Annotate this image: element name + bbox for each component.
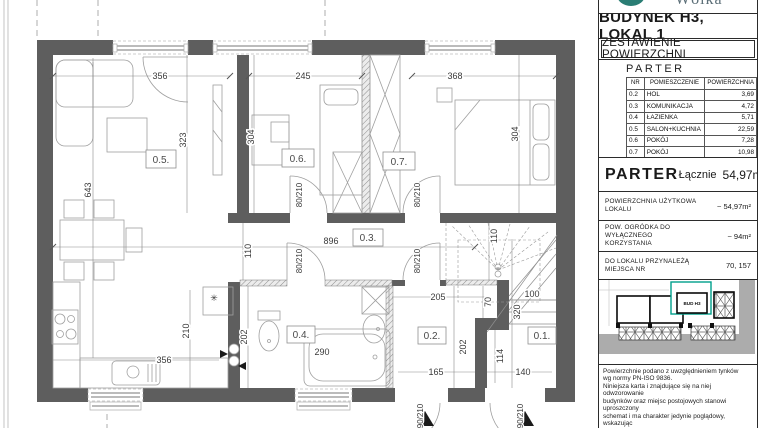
dim-room01-width: 140 (515, 367, 530, 377)
pillow (533, 144, 549, 180)
room-label-04: 0.4. (287, 326, 315, 343)
dining-table (60, 220, 124, 260)
dim-stairs-landing: 70 (483, 297, 493, 307)
site-map: BUD H3 (599, 280, 755, 364)
walls (37, 40, 575, 402)
parking-row: DO LOKALU PRZYNALEŻĄ MIEJSCA NR 70, 157 (599, 252, 757, 280)
room-label-07: 0.7. (383, 152, 415, 170)
svg-text:0.4.: 0.4. (293, 330, 310, 341)
parking-row (619, 327, 681, 340)
room-label-01: 0.1. (528, 327, 556, 344)
gas-point-symbol: ✳ (210, 293, 218, 303)
table-row: 0.3KOMUNIKACJA4,72 (627, 101, 757, 113)
door-label-4: 80/210 (413, 248, 422, 273)
sofa (56, 60, 133, 107)
garden-area-row: POW. OGRÓDKA DO WYŁĄCZNEGO KORZYSTANIA ~… (599, 221, 757, 252)
dim-kitchen-depth: 210 (181, 323, 191, 338)
area-table-section: PARTER NR POMIESZCZENIE POWIERZCHNIA 0.2… (599, 60, 757, 158)
disclaimer: Powierzchnie podano z uwzględnieniem tyn… (599, 365, 757, 428)
room-label-05: 0.5. (146, 150, 176, 168)
pipe-shaft (229, 344, 239, 354)
pillow (324, 89, 358, 105)
summary-label: Łącznie (679, 169, 717, 181)
svg-text:0.2.: 0.2. (424, 331, 441, 342)
chair (64, 262, 84, 280)
toilet-tank (258, 311, 280, 320)
floor-plan: ✳ (0, 0, 598, 428)
logo-text: Wólka (675, 0, 723, 9)
entrance-label-1: 90/210 (416, 403, 425, 428)
bedroom07-furniture (437, 88, 555, 185)
dim-stairs-bottom-width: 100 (524, 289, 539, 299)
window-kitchen (88, 389, 143, 410)
logo-icon (617, 0, 645, 6)
dim-top-mid: 245 (295, 71, 310, 81)
dim-hall-top: 205 (430, 292, 445, 302)
room-label-06: 0.6. (282, 149, 314, 167)
floor-summary: PARTER Łącznie 54,97m² (599, 158, 757, 192)
desk-chair (271, 122, 289, 142)
svg-text:0.1.: 0.1. (534, 331, 551, 342)
dim-top-right: 368 (447, 71, 462, 81)
entrance-label-2: 90/210 (516, 403, 525, 428)
door-label-2: 80/210 (413, 182, 422, 207)
dim-bath-height: 202 (239, 329, 249, 344)
info-panel: Wólka BUDYNEK H3, LOKAL 1 ZESTAWIENIE PO… (598, 0, 758, 428)
door-label-3: 80/210 (295, 248, 304, 273)
subtitle: ZESTAWIENIE POWIERZCHNI (601, 40, 755, 58)
window-salon (113, 41, 188, 54)
chair (94, 200, 114, 218)
table-row: 0.2HOL3,69 (627, 89, 757, 101)
building-title: BUDYNEK H3, LOKAL 1 (599, 14, 757, 39)
pillow (533, 104, 549, 140)
building-hatched (714, 292, 734, 318)
floorplan-sheet: ✳ (0, 0, 760, 428)
table-row: 0.7POKÓJ10,98 (627, 147, 757, 159)
bed-single (320, 85, 362, 195)
toilet (259, 321, 279, 351)
dim-stairs-width: 110 (489, 229, 499, 243)
dim-salon-left: 643 (83, 182, 93, 197)
dim-top-left: 356 (152, 71, 167, 81)
bed-double (455, 100, 555, 185)
dim-corridor-width: 110 (243, 244, 253, 258)
dim-room06-height: 304 (246, 129, 256, 144)
floor-label: PARTER (626, 63, 757, 75)
table-row: 0.5SALON+KUCHNIA22,59 (627, 124, 757, 136)
dim-salon-height: 323 (178, 132, 188, 147)
window-room07 (425, 41, 495, 54)
table-row: 0.4ŁAZIENKA5,71 (627, 112, 757, 124)
svg-text:0.7.: 0.7. (391, 157, 408, 168)
svg-text:0.5.: 0.5. (153, 155, 170, 166)
nightstand (437, 88, 452, 102)
dim-room07-height: 304 (510, 126, 520, 141)
table-row: 0.6POKÓJ7,28 (627, 135, 757, 147)
svg-text:0.6.: 0.6. (290, 154, 307, 165)
tv-unit (213, 85, 222, 175)
building (617, 296, 650, 323)
window-room06 (213, 41, 312, 54)
building-h3-label: BUD H3 (683, 301, 701, 306)
summary-floor: PARTER (605, 166, 679, 184)
chair (126, 228, 142, 252)
dim-bathtub: 290 (314, 347, 329, 357)
col-header-nr: NR (627, 78, 645, 90)
coffee-table (107, 118, 147, 152)
area-table: NR POMIESZCZENIE POWIERZCHNIA 0.2HOL3,69… (626, 77, 757, 158)
logo: Wólka (599, 0, 757, 14)
stove (52, 310, 78, 344)
parking-row (691, 326, 735, 340)
chair (64, 200, 84, 218)
col-header-room: POMIESZCZENIE (644, 78, 705, 90)
dim-room01-height: 114 (495, 349, 505, 363)
dim-stairs-depth: 320 (512, 304, 522, 319)
col-header-area: POWIERZCHNIA (705, 78, 757, 90)
subtitle-section: ZESTAWIENIE POWIERZCHNI (599, 39, 757, 60)
room-label-02: 0.2. (418, 327, 446, 344)
dim-corridor-length: 896 (323, 236, 338, 246)
chair (94, 262, 114, 280)
usable-area-row: POWIERZCHNIA UŻYTKOWA LOKALU ~ 54,97m² (599, 192, 757, 221)
dim-hall-bottom: 165 (428, 367, 443, 377)
closet (370, 55, 400, 213)
door-bathroom (287, 243, 325, 280)
dim-kitchen-width: 356 (156, 355, 171, 365)
site-map-section: BUD H3 (599, 280, 757, 365)
svg-text:0.3.: 0.3. (360, 233, 377, 244)
window-bathroom (295, 389, 352, 410)
room-label-03: 0.3. (353, 229, 383, 246)
door-label-1: 80/210 (295, 182, 304, 207)
windows (88, 41, 495, 410)
summary-value: 54,97m² (723, 168, 757, 182)
dim-hall-height: 202 (458, 339, 468, 354)
road-side (739, 280, 755, 334)
sink (112, 361, 160, 385)
kitchen-furniture: ✳ (52, 282, 233, 388)
